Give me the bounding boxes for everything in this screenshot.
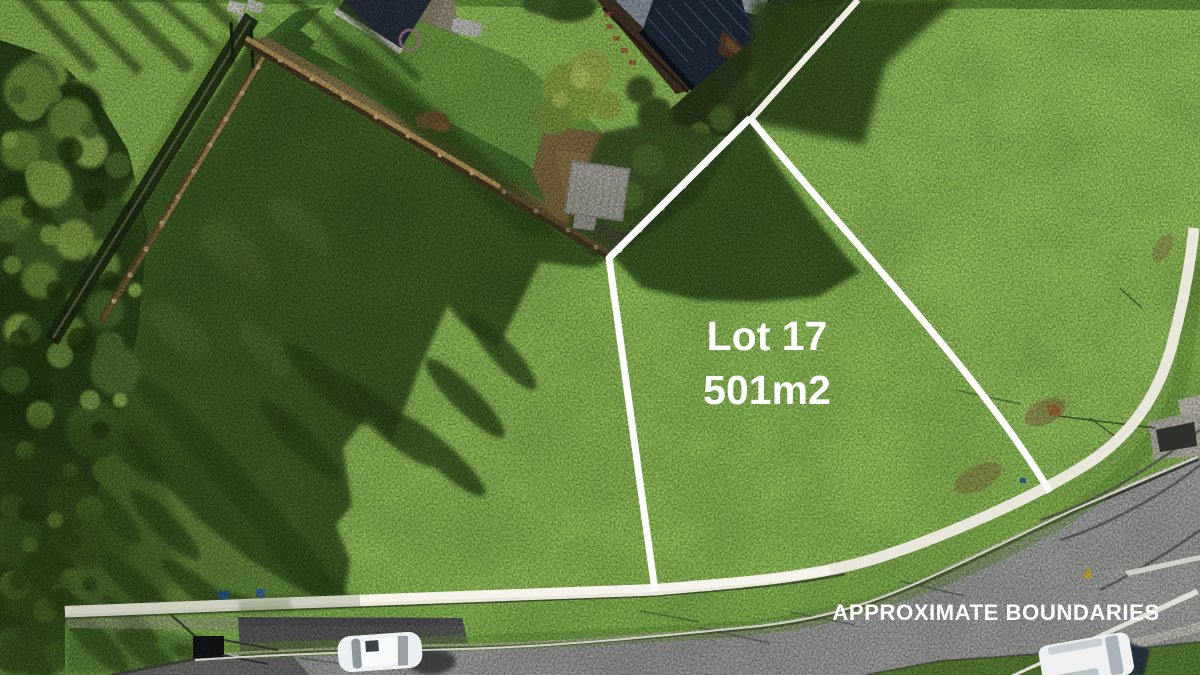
svg-text:Lot 17: Lot 17	[707, 313, 828, 359]
svg-text:APPROXIMATE BOUNDARIES: APPROXIMATE BOUNDARIES	[832, 600, 1159, 625]
svg-text:501m2: 501m2	[703, 367, 831, 413]
